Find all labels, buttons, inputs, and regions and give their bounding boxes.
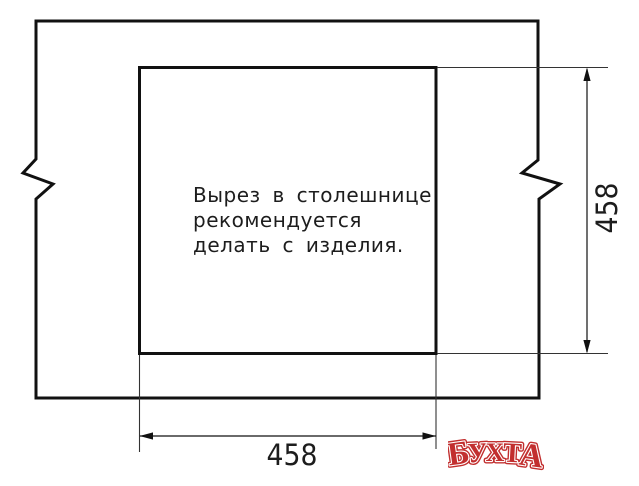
dimension-label-width: 458	[267, 438, 318, 472]
logo-letters-layer: Б У Х Т А	[448, 435, 544, 476]
note-line: делать с изделия.	[193, 233, 432, 258]
arrow-up	[583, 68, 590, 82]
arrow-right	[423, 432, 437, 439]
dimension-label-height: 458	[590, 183, 624, 234]
arrow-left	[140, 432, 154, 439]
buhta-logo: Б У Х Т А Б У Х Т А	[448, 430, 544, 480]
arrow-down	[583, 340, 590, 354]
note-line: Вырез в столешнице	[193, 183, 432, 208]
logo-letter: А	[517, 437, 544, 476]
cutout-note: Вырез в столешнице рекомендуется делать …	[193, 183, 432, 258]
note-line: рекомендуется	[193, 208, 432, 233]
countertop-cutout-drawing: Вырез в столешнице рекомендуется делать …	[0, 0, 639, 486]
